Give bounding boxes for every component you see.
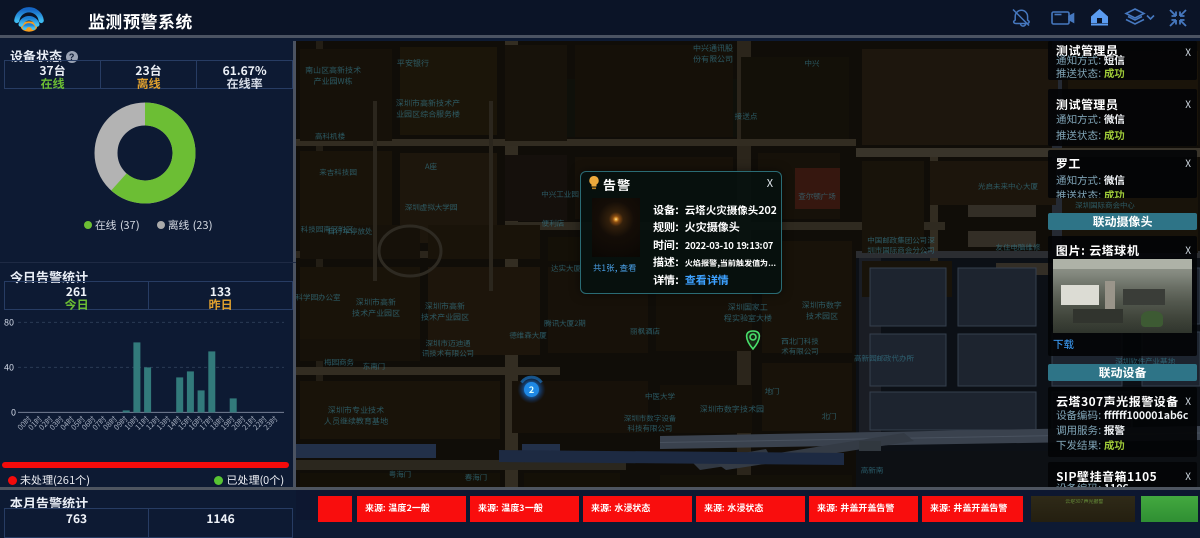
svg-text:达实大厦: 达实大厦 (551, 263, 581, 274)
svg-text:高新园邮政代办所: 高新园邮政代办所 (854, 353, 914, 364)
svg-text:梅园商务: 梅园商务 (324, 357, 354, 368)
svg-text:春海门: 春海门 (465, 472, 488, 483)
svg-text:南山区高新技术: 南山区高新技术 (305, 65, 362, 76)
svg-text:0: 0 (11, 405, 16, 418)
svg-text:自行车停放处: 自行车停放处 (328, 226, 373, 237)
svg-text:圳市国际商会分公司: 圳市国际商会分公司 (867, 245, 935, 256)
svg-text:中兴: 中兴 (805, 58, 820, 69)
svg-text:来吉科技园: 来吉科技园 (319, 167, 357, 178)
svg-text:光启未来中心大厦: 光启未来中心大厦 (978, 181, 1038, 192)
svg-text:40: 40 (4, 360, 14, 373)
svg-text:技术园区: 技术园区 (806, 311, 838, 322)
svg-text:深圳国家工: 深圳国家工 (727, 302, 768, 313)
svg-text:查尔顿广场: 查尔顿广场 (798, 191, 836, 202)
svg-text:2: 2 (529, 383, 534, 396)
svg-text:深圳市高新技术产: 深圳市高新技术产 (395, 98, 460, 109)
svg-text:程实验室大楼: 程实验室大楼 (723, 313, 772, 324)
svg-text:友住电脑维修: 友住电脑维修 (996, 242, 1041, 253)
svg-text:中医大学: 中医大学 (645, 391, 675, 402)
svg-text:科学园办公室: 科学园办公室 (296, 292, 341, 303)
svg-text:深圳市数字: 深圳市数字 (801, 300, 842, 311)
svg-text:80: 80 (4, 317, 14, 328)
svg-text:A座: A座 (425, 161, 438, 172)
svg-text:北门: 北门 (822, 411, 837, 422)
svg-text:科技有限公司: 科技有限公司 (627, 423, 673, 434)
svg-text:中兴通讯股: 中兴通讯股 (693, 43, 733, 54)
svg-text:平安银行: 平安银行 (397, 58, 429, 69)
svg-text:高新南: 高新南 (861, 465, 884, 476)
svg-text:深圳市专业技术: 深圳市专业技术 (327, 405, 385, 416)
svg-text:术有限公司: 术有限公司 (781, 346, 819, 357)
svg-text:深圳市数字技术园: 深圳市数字技术园 (699, 404, 764, 415)
svg-text:丽枫酒店: 丽枫酒店 (630, 326, 660, 337)
svg-text:中兴工业园: 中兴工业园 (541, 189, 579, 200)
svg-text:高科机楼: 高科机楼 (315, 131, 345, 142)
svg-text:深圳市高新: 深圳市高新 (424, 301, 465, 312)
svg-text:深圳市高新: 深圳市高新 (355, 297, 396, 308)
svg-text:业园区综合服务楼: 业园区综合服务楼 (396, 109, 460, 120)
svg-text:技术产业园区: 技术产业园区 (421, 312, 469, 323)
svg-text:讯技术有限公司: 讯技术有限公司 (422, 348, 475, 359)
svg-text:德维森大厦: 德维森大厦 (509, 330, 547, 341)
svg-text:地门: 地门 (765, 386, 780, 397)
svg-text:份有限公司: 份有限公司 (693, 54, 733, 65)
svg-text:产业园W栋: 产业园W栋 (313, 76, 352, 87)
svg-text:东南门: 东南门 (363, 361, 386, 372)
svg-text:深圳虚拟大学园: 深圳虚拟大学园 (405, 202, 458, 213)
svg-text:人员继续教育基地: 人员继续教育基地 (323, 416, 389, 427)
svg-text:便利店: 便利店 (542, 218, 565, 229)
svg-text:深圳国际商会中心: 深圳国际商会中心 (1075, 200, 1135, 211)
svg-text:接送点: 接送点 (735, 111, 758, 122)
svg-text:粤海门: 粤海门 (389, 469, 412, 480)
svg-text:技术产业园区: 技术产业园区 (352, 308, 400, 319)
svg-text:腾讯大厦2期: 腾讯大厦2期 (543, 318, 586, 329)
